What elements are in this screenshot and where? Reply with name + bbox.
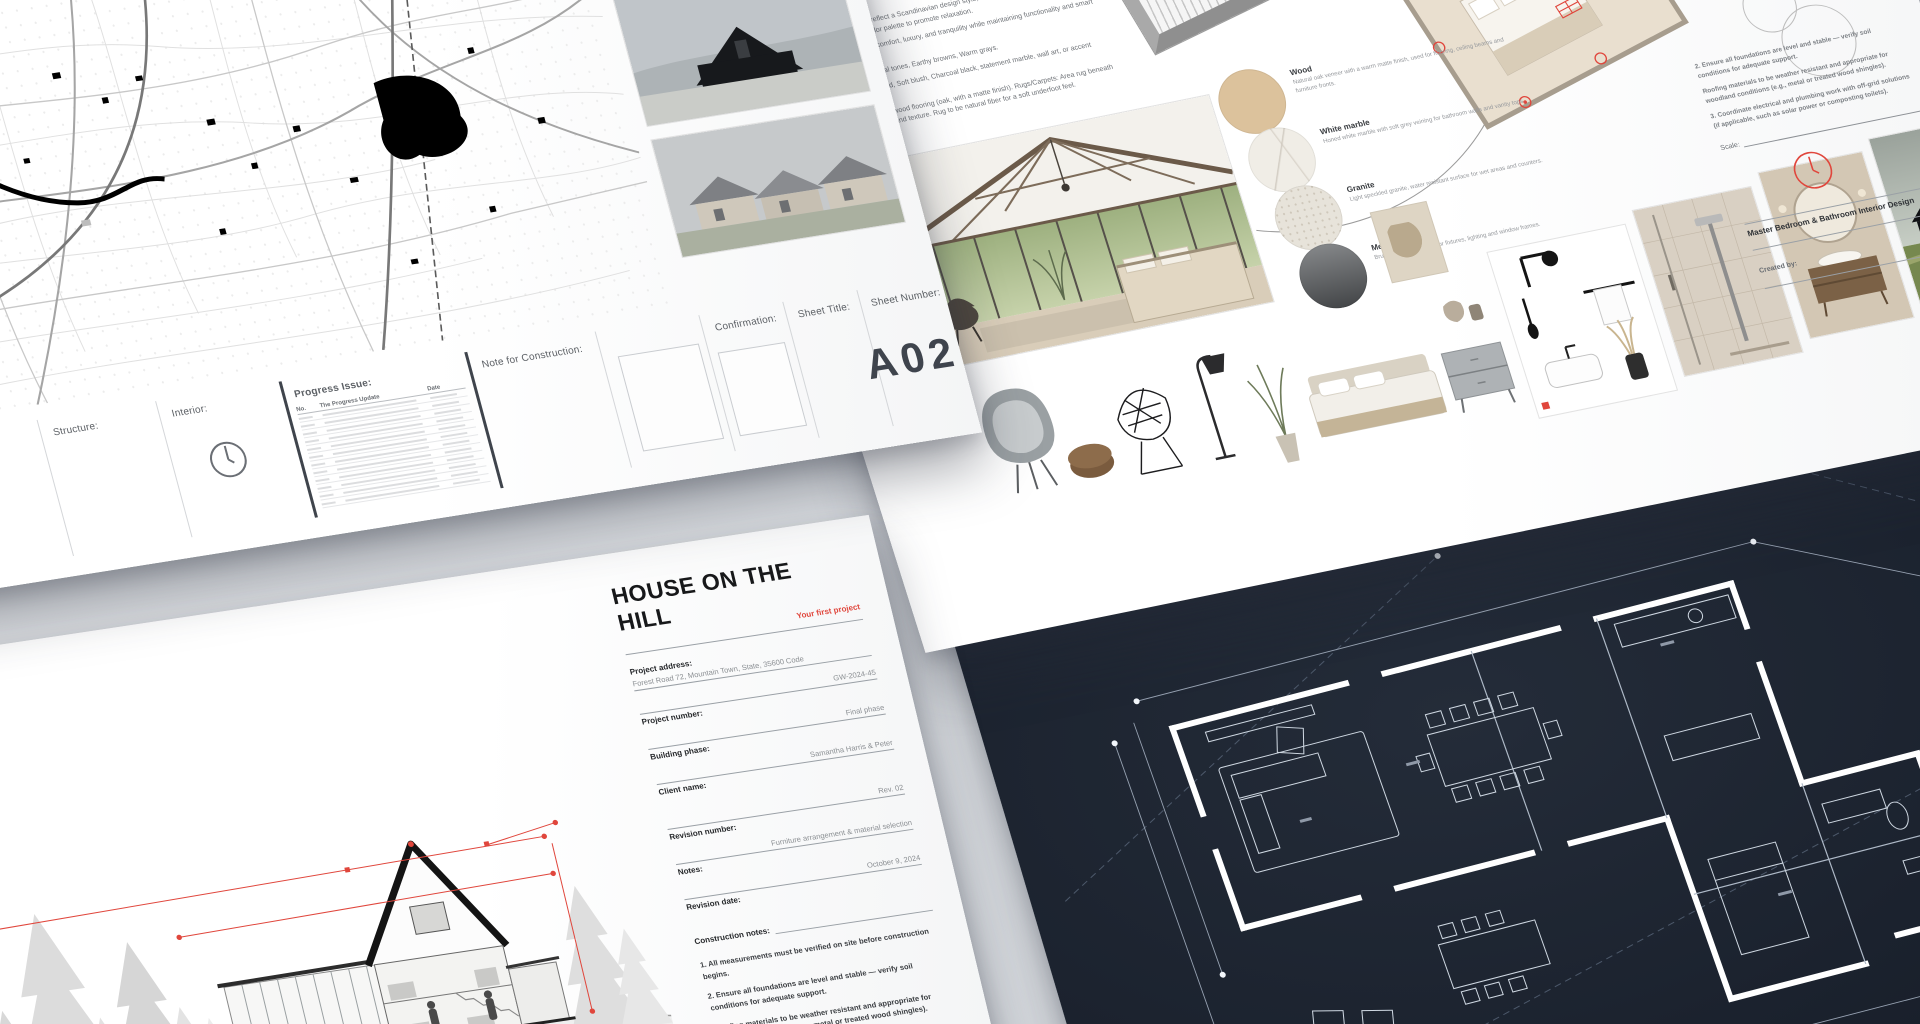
construction-notes-heading: Construction notes: xyxy=(693,926,770,946)
egg-chair-photo xyxy=(973,383,1071,496)
sheet-title-label: Sheet Title: xyxy=(797,302,852,321)
sheet-site-map-a02: Client: Structure: Interior: Progress Is… xyxy=(0,0,982,598)
sheet-number-value: A02 xyxy=(860,328,963,389)
double-bed-photo xyxy=(1303,353,1447,438)
clock-icon xyxy=(202,436,254,483)
red-tag xyxy=(1541,402,1550,410)
interior-label: Interior: xyxy=(171,403,209,419)
key-plan-box xyxy=(618,344,724,452)
confirmation-box xyxy=(718,342,808,436)
stone-cottages-photo xyxy=(651,105,904,257)
floor-lamp-photo xyxy=(1185,353,1255,459)
red-clock-icon xyxy=(1785,145,1841,196)
vases-photo xyxy=(1441,296,1484,326)
sheet-house-section: HOUSE ON THE HILL Your first project Pro… xyxy=(0,515,1000,1024)
progress-table: No. The Progress Update Date xyxy=(296,381,491,509)
confirmation-label: Confirmation: xyxy=(714,313,778,333)
scale-label: Scale: xyxy=(1720,142,1741,153)
poster-background: Master bedroom The master bedroom will r… xyxy=(0,0,1920,1024)
dresser-photo xyxy=(1441,342,1519,413)
sheet-number-label: Sheet Number: xyxy=(870,287,942,309)
structure-label: Structure: xyxy=(52,421,100,439)
wire-chair-photo xyxy=(1110,384,1187,475)
hillside-section-drawing xyxy=(0,580,689,1024)
ottoman-photo xyxy=(1065,440,1118,481)
branch-vase-photo xyxy=(1243,360,1311,465)
black-barn-house-photo xyxy=(609,0,870,126)
note-for-construction-label: Note for Construction: xyxy=(481,344,584,371)
